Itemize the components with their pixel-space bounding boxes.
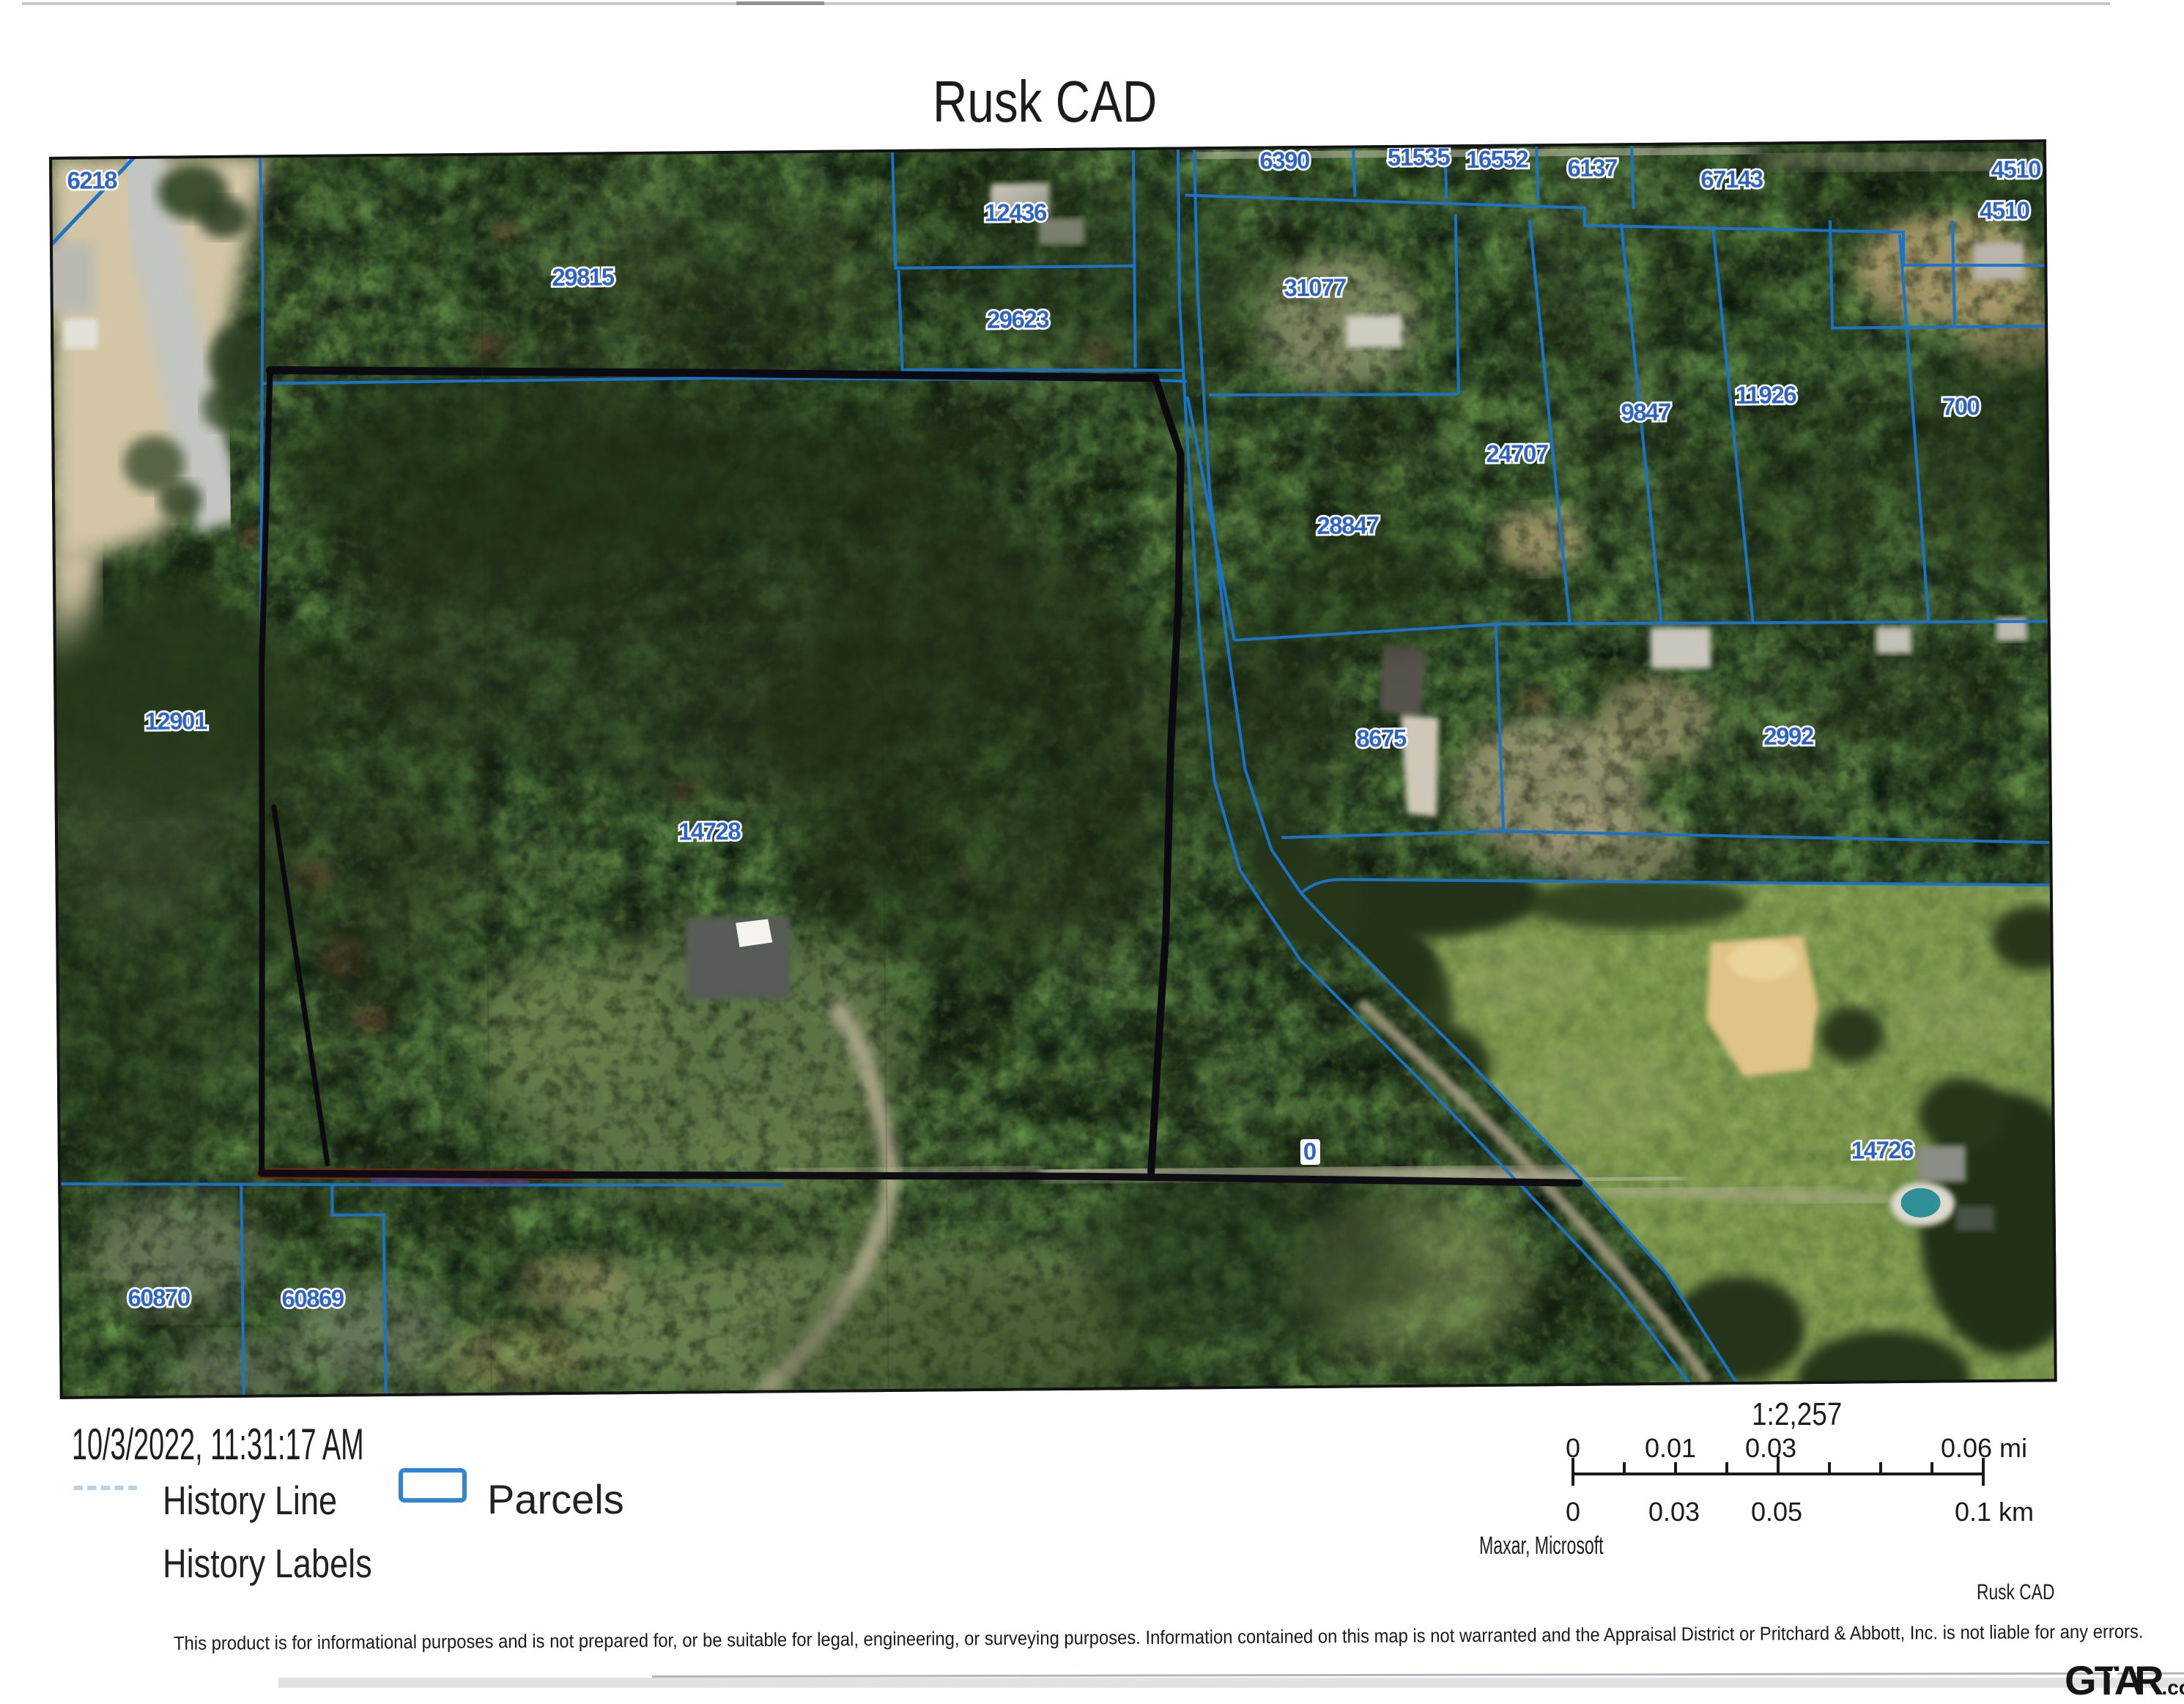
svg-text:0.03: 0.03 xyxy=(1745,1433,1796,1463)
svg-text:11926: 11926 xyxy=(1736,381,1797,409)
svg-text:6137: 6137 xyxy=(1567,154,1617,182)
svg-text:12901: 12901 xyxy=(144,707,207,735)
svg-text:0.03: 0.03 xyxy=(1648,1497,1700,1527)
svg-text:0: 0 xyxy=(1303,1138,1317,1165)
svg-text:14726: 14726 xyxy=(1851,1136,1914,1164)
svg-text:0.01: 0.01 xyxy=(1645,1433,1696,1463)
svg-text:24707: 24707 xyxy=(1486,440,1548,467)
svg-text:12436: 12436 xyxy=(984,199,1047,226)
svg-text:0.05: 0.05 xyxy=(1751,1497,1802,1527)
svg-text:0.06 mi: 0.06 mi xyxy=(1941,1433,2027,1463)
svg-text:700: 700 xyxy=(1942,393,1980,420)
svg-text:9847: 9847 xyxy=(1621,399,1670,426)
svg-text:6218: 6218 xyxy=(67,166,117,194)
svg-text:14728: 14728 xyxy=(678,818,741,845)
svg-text:60870: 60870 xyxy=(127,1283,190,1311)
svg-text:29623: 29623 xyxy=(987,305,1050,333)
svg-text:2992: 2992 xyxy=(1763,722,1814,750)
svg-text:4510: 4510 xyxy=(1991,155,2040,183)
svg-text:8675: 8675 xyxy=(1356,725,1407,752)
svg-text:16552: 16552 xyxy=(1466,145,1529,173)
svg-text:0.1 km: 0.1 km xyxy=(1955,1497,2034,1527)
svg-text:0: 0 xyxy=(1566,1497,1580,1527)
svg-text:28847: 28847 xyxy=(1317,511,1379,539)
svg-text:6390: 6390 xyxy=(1259,147,1309,174)
svg-text:31077: 31077 xyxy=(1284,274,1346,302)
svg-text:29815: 29815 xyxy=(552,263,615,291)
svg-text:60869: 60869 xyxy=(281,1285,344,1313)
svg-text:67143: 67143 xyxy=(1700,166,1763,193)
svg-text:0: 0 xyxy=(1566,1433,1580,1463)
svg-text:4510: 4510 xyxy=(1980,196,2029,224)
